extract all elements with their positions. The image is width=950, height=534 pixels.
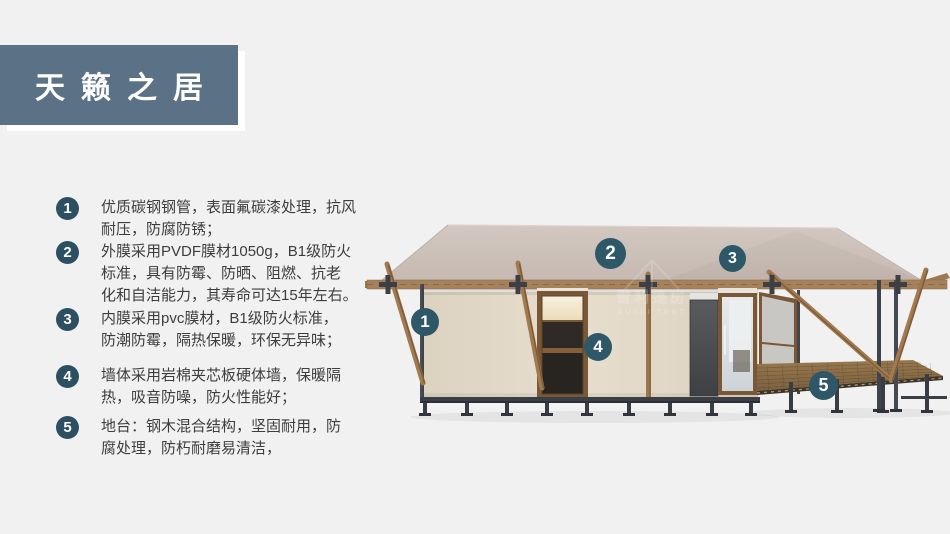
feature-text: 优质碳钢钢管，表面氟碳漆处理，抗风 耐压，防腐防锈； [101, 197, 356, 241]
feature-line: 腐处理，防朽耐磨易清洁， [101, 438, 341, 460]
watermark-cn: 雪利篷房 [616, 288, 688, 306]
feature-line: 防潮防霉，隔热保暖，环保无异味； [101, 330, 341, 352]
ground-shadow [410, 408, 950, 423]
feature-number-badge: 5 [56, 416, 79, 439]
feature-line: 地台：钢木混合结构，坚固耐用，防 [101, 416, 341, 438]
feature-line: 内膜采用pvc膜材，B1级防火标准， [101, 308, 341, 330]
diagram-badge-2: 2 [595, 238, 626, 269]
feature-line: 耐压，防腐防锈； [101, 219, 356, 241]
dark-glazed-panel [690, 293, 718, 396]
entry-door [537, 288, 588, 400]
page-title: 天籁之居 [0, 45, 238, 125]
feature-item-3: 3 内膜采用pvc膜材，B1级防火标准， 防潮防霉，隔热保暖，环保无异味； [56, 308, 341, 352]
feature-text: 内膜采用pvc膜材，B1级防火标准， 防潮防霉，隔热保暖，环保无异味； [101, 308, 341, 352]
diagram-badge-1: 1 [411, 308, 439, 336]
corner-posts-right [873, 280, 902, 412]
wood-deck [757, 360, 943, 395]
feature-text: 墙体采用岩棉夹芯板硬体墙，保暖隔 热，吸音防噪，防火性能好； [101, 365, 341, 409]
feature-number-badge: 2 [56, 241, 79, 264]
feature-line: 优质碳钢钢管，表面氟碳漆处理，抗风 [101, 197, 356, 219]
feature-line: 标准，具有防霉、防晒、阻燃、抗老 [101, 263, 358, 285]
watermark-en: XUELI TENT [618, 307, 687, 316]
feature-item-1: 1 优质碳钢钢管，表面氟碳漆处理，抗风 耐压，防腐防锈； [56, 197, 356, 241]
feature-number-badge: 3 [56, 308, 79, 331]
slide-page: 天籁之居 1 优质碳钢钢管，表面氟碳漆处理，抗风 耐压，防腐防锈； 2 外膜采用… [0, 0, 950, 534]
feature-item-4: 4 墙体采用岩棉夹芯板硬体墙，保暖隔 热，吸音防噪，防火性能好； [56, 365, 341, 409]
feature-item-2: 2 外膜采用PVDF膜材1050g，B1级防火 标准，具有防霉、防晒、阻燃、抗老… [56, 241, 358, 307]
diagram-badge-4: 4 [584, 333, 612, 361]
feature-line: 外膜采用PVDF膜材1050g，B1级防火 [101, 241, 358, 263]
feature-text: 外膜采用PVDF膜材1050g，B1级防火 标准，具有防霉、防晒、阻燃、抗老 化… [101, 241, 358, 307]
feature-number-badge: 1 [56, 197, 79, 220]
feature-line: 热，吸音防噪，防火性能好； [101, 387, 341, 409]
feature-line: 墙体采用岩棉夹芯板硬体墙，保暖隔 [101, 365, 341, 387]
feature-line: 化和自洁能力，其寿命可达15年左右。 [101, 285, 358, 307]
glass-door [718, 288, 757, 395]
diagram-badge-3: 3 [719, 245, 746, 272]
feature-item-5: 5 地台：钢木混合结构，坚固耐用，防 腐处理，防朽耐磨易清洁， [56, 416, 341, 460]
diagram-badge-5: 5 [809, 371, 838, 400]
feature-text: 地台：钢木混合结构，坚固耐用，防 腐处理，防朽耐磨易清洁， [101, 416, 341, 460]
tent-illustration: 雪利篷房 XUELI TENT [365, 200, 950, 440]
feature-number-badge: 4 [56, 365, 79, 388]
